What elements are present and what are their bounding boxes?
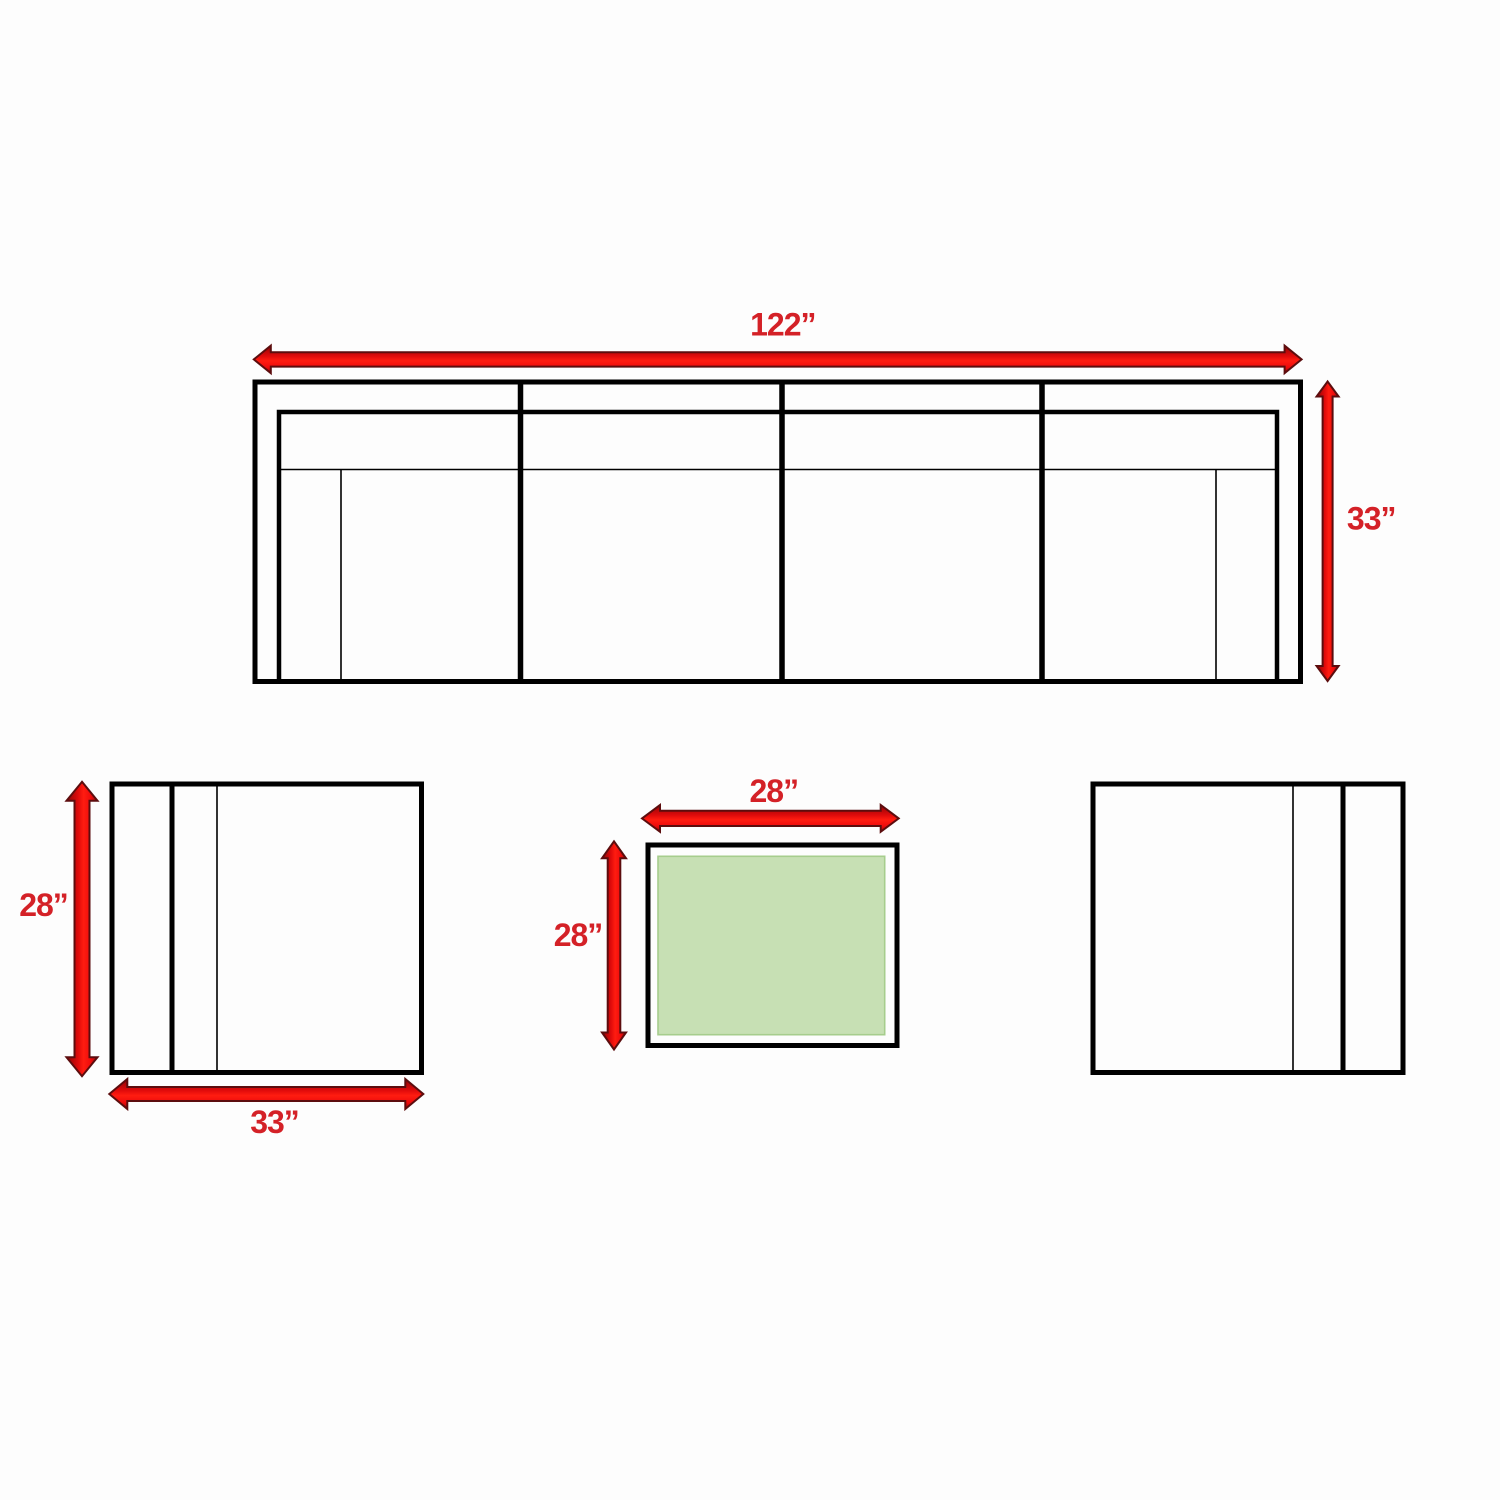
svg-text:28”: 28” — [554, 917, 603, 953]
svg-text:28”: 28” — [19, 887, 68, 923]
svg-text:33”: 33” — [1347, 501, 1396, 537]
svg-text:122”: 122” — [750, 306, 815, 342]
svg-text:28”: 28” — [750, 773, 799, 809]
svg-text:33”: 33” — [250, 1104, 299, 1140]
